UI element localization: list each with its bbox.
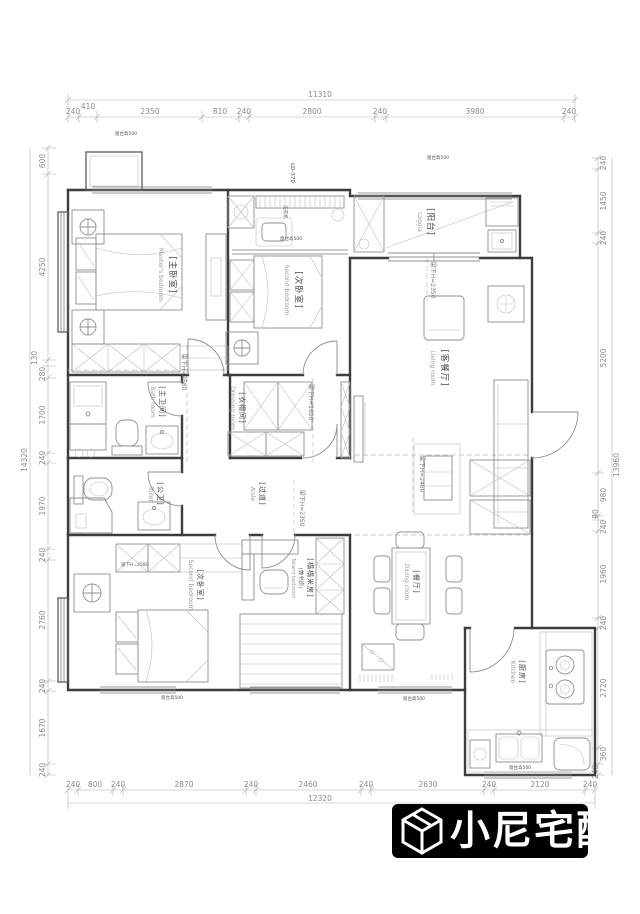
room-label-cn: [厨房] xyxy=(518,660,527,683)
washer-label: 洗衣机 xyxy=(282,205,289,219)
dim-seg: 240 xyxy=(38,763,47,778)
wardrobe xyxy=(316,538,344,614)
room-kitchen: [厨房] Kitchen xyxy=(468,628,592,772)
sill-label: 窗台高500 xyxy=(403,695,425,702)
sill-label: 窗台高500 xyxy=(115,130,137,137)
dim-seg: 600 xyxy=(38,154,47,169)
dim-seg: 980 xyxy=(599,488,608,503)
room-label-en: Living room xyxy=(429,350,436,385)
room-label-cn: [餐厅] xyxy=(412,570,421,593)
brand-logo: 小尼宅配 xyxy=(392,804,618,858)
dim-seg: 240 xyxy=(111,780,126,789)
bay-window-bedroom2 xyxy=(58,598,68,682)
coffee-table xyxy=(424,456,452,500)
room-bath: [主卫间] Bath room xyxy=(70,382,182,457)
beam-label: 梁下H=2580 xyxy=(180,354,188,391)
dim-seg: 5200 xyxy=(599,348,608,367)
room-label-cn: [主卫间] xyxy=(158,386,167,417)
room-label-cn: [次卧室] xyxy=(293,271,304,308)
room-label-cn: [次卧室] xyxy=(196,569,205,600)
dim-seg: 240 xyxy=(66,107,81,116)
dim-seg: 800 xyxy=(88,780,103,789)
room-label-en: Loggia xyxy=(416,212,423,232)
dining-table xyxy=(392,548,430,624)
flue-box xyxy=(86,152,142,190)
dim-seg: 240 xyxy=(359,780,374,789)
sofa xyxy=(494,380,528,528)
dim-seg: 3980 xyxy=(465,107,484,116)
dim-seg: 410 xyxy=(81,102,96,111)
door-kitchen xyxy=(470,628,514,672)
dimension-chain-top: 11310 240 410 2350 810 240 2800 240 3980… xyxy=(65,90,578,123)
dim-seg: 360 xyxy=(599,747,608,762)
dim-seg: 240 xyxy=(599,520,608,535)
dim-seg: 4250 xyxy=(38,257,47,276)
room-label-cn: [主卧室] xyxy=(167,256,178,293)
room-label-cn: [阳台] xyxy=(425,208,436,236)
room-second-bedroom-bottom: 梁下H=2580 [次卧室] Second bedroom xyxy=(74,535,250,682)
room-label-en: Tatami bedroom xyxy=(290,557,296,599)
sill-annotations: 窗台高500 窗台高500 窗台高500 窗台高500 窗台高500 LD-37… xyxy=(115,130,531,771)
armchair xyxy=(424,296,464,340)
room-master-bedroom: [主卧室] Master's bedroom xyxy=(72,210,228,375)
dim-seg: 2800 xyxy=(302,107,321,116)
room-label-en: Dining room xyxy=(403,564,410,601)
room-second-bedroom-top: 洗衣机 窗台高500 [次卧室] Second bedroom xyxy=(226,196,344,375)
room-label-cn: [衣帽间] xyxy=(238,392,247,423)
sill-label: 窗台高500 xyxy=(161,694,183,701)
dim-seg: 240 xyxy=(38,451,47,466)
beam-label: 梁下H=2350 xyxy=(298,490,306,527)
dim-seg: 240 xyxy=(38,679,47,694)
dim-seg: 240 xyxy=(599,231,608,246)
tatami-platform xyxy=(240,614,342,688)
room-label-en: Kitchen xyxy=(509,661,516,684)
door-master xyxy=(188,339,224,375)
dim-seg: 2350 xyxy=(140,107,159,116)
dim-seg: 1970 xyxy=(38,496,47,515)
dim-seg: 2460 xyxy=(298,780,317,789)
bay-window-master xyxy=(58,212,68,332)
room-toilet: [公卫] Toilet xyxy=(70,472,182,533)
dim-seg: 240 xyxy=(237,107,252,116)
room-dining: [餐厅] Dining room xyxy=(360,532,462,682)
room-label-cn: [榻榻米房] xyxy=(306,558,315,597)
dim-total-bottom: 12320 xyxy=(308,794,332,803)
room-label-en: Second bedroom xyxy=(283,265,290,316)
beam-label: 梁下H=2620 xyxy=(307,384,315,421)
room-aisle: [过道] Aisle xyxy=(249,482,267,505)
dim-seg: 130 xyxy=(30,351,39,366)
room-label-sub: (兼书房) xyxy=(297,568,305,589)
beam-label: 梁下H=2460 xyxy=(418,456,426,493)
room-tatami: [榻榻米房] (兼书房) Tatami bedroom xyxy=(240,535,344,688)
room-label-en: Second bedroom xyxy=(187,560,194,611)
dim-seg: 2760 xyxy=(38,610,47,629)
sill-label: 窗台高500 xyxy=(509,764,531,771)
dim-seg: 240 xyxy=(373,107,388,116)
room-label-en: Aisle xyxy=(249,487,256,502)
dimension-chain-left: 600 4250 130 280 1700 240 1970 240 2760 … xyxy=(20,145,56,778)
dim-seg: 240 xyxy=(599,616,608,631)
room-label-cn: [过道] xyxy=(258,482,267,505)
dim-seg: 2630 xyxy=(418,780,437,789)
beam-label: 梁下H=2350 xyxy=(429,262,437,299)
dim-total-right: 13960 xyxy=(612,453,621,477)
room-label-en: Bath room xyxy=(149,386,156,418)
brand-name: 小尼宅配 xyxy=(450,808,618,854)
dim-seg: 240 xyxy=(583,780,598,789)
toilet xyxy=(116,420,138,446)
dim-total-top: 11310 xyxy=(308,90,332,99)
beam-label-small: 梁下H=2580 xyxy=(121,561,149,568)
dim-seg: 2720 xyxy=(599,678,608,697)
dim-seg: 810 xyxy=(213,107,228,116)
floor-plan-canvas: 11310 240 410 2350 810 240 2800 240 3980… xyxy=(0,0,640,914)
entry-door xyxy=(532,412,578,458)
room-living: [客餐厅] Living room xyxy=(354,286,578,534)
dim-seg: 240 xyxy=(38,548,47,563)
dim-total-left: 14320 xyxy=(20,448,29,472)
room-loggia: [阳台] Loggia xyxy=(354,196,518,261)
dim-seg: 90 xyxy=(591,509,600,519)
sliding-door xyxy=(388,253,480,261)
dim-seg: 2120 xyxy=(530,780,549,789)
dim-seg: 1960 xyxy=(599,564,608,583)
room-dressing: [衣帽间] Dressing room xyxy=(228,382,350,458)
tv-cabinet xyxy=(354,396,363,462)
room-label-en: Dressing room xyxy=(229,386,236,430)
desk-chair xyxy=(260,570,288,594)
dim-seg: 240 xyxy=(66,780,81,789)
room-label-cn: [客餐厅] xyxy=(439,349,450,386)
dim-seg: 1450 xyxy=(599,191,608,210)
dim-seg: 2870 xyxy=(174,780,193,789)
dim-seg: 280 xyxy=(38,367,47,382)
dim-seg: 240 xyxy=(482,780,497,789)
room-label-en: Toilet xyxy=(147,485,154,502)
dim-seg: 1700 xyxy=(38,405,47,424)
kitchen-sink xyxy=(496,734,542,762)
dim-seg: 240 xyxy=(244,780,259,789)
door-dressing xyxy=(303,424,337,458)
dim-seg: 240 xyxy=(562,107,577,116)
ld-label: LD-370 xyxy=(289,163,295,183)
room-label-en: Master's bedroom xyxy=(157,248,164,302)
sill-label: 窗台高500 xyxy=(427,154,449,161)
dim-seg: 240 xyxy=(599,156,608,171)
dim-seg: 1670 xyxy=(38,718,47,737)
room-label-cn: [公卫] xyxy=(156,482,164,505)
stove xyxy=(546,650,584,704)
door-second-bedroom-top xyxy=(303,341,337,375)
